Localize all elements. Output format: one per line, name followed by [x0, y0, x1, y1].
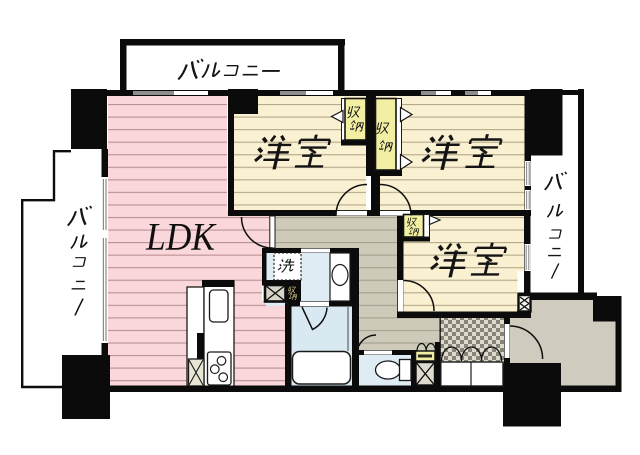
svg-text:LDK: LDK — [145, 216, 217, 259]
